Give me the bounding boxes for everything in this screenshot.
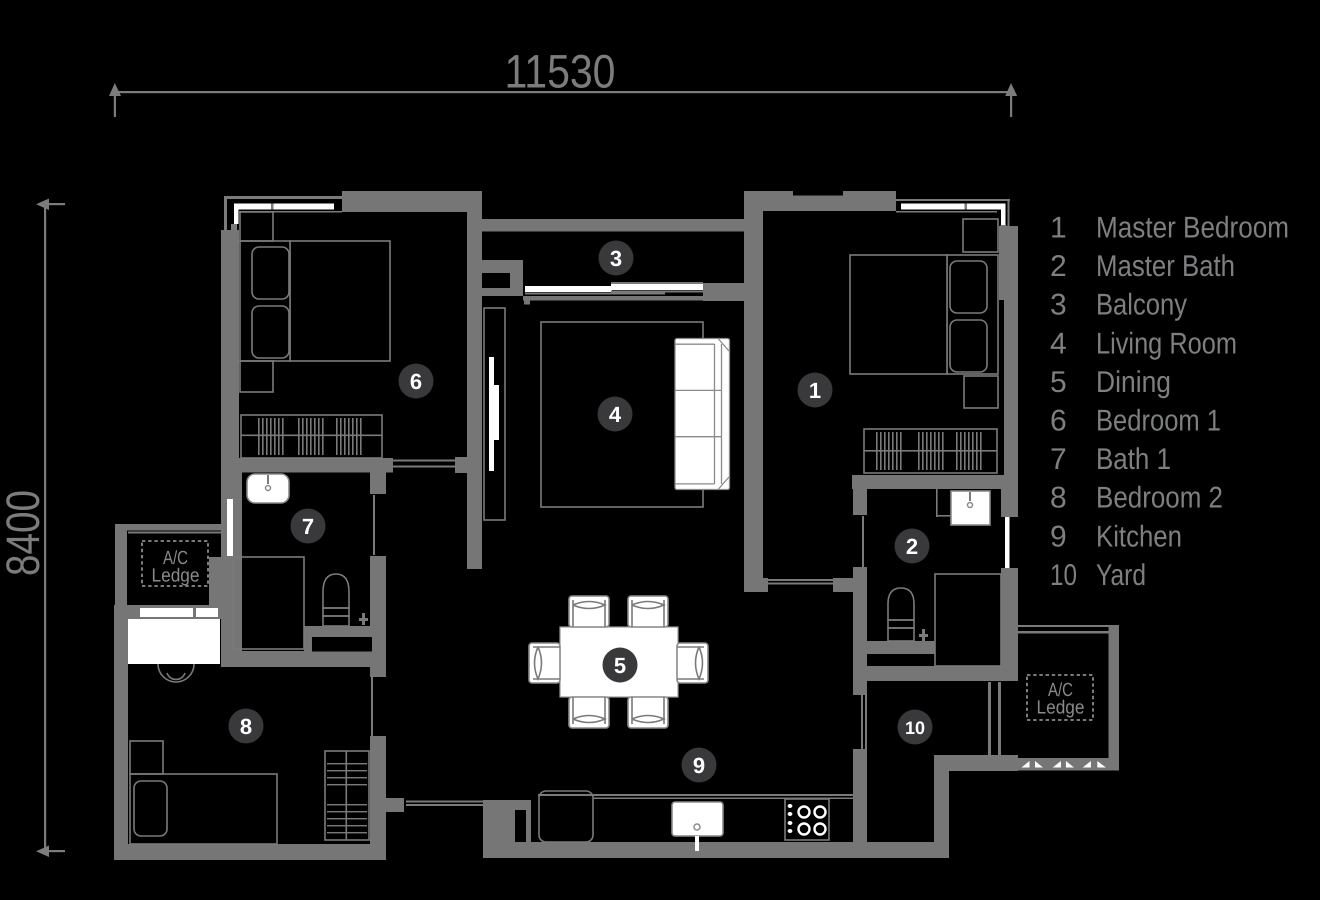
svg-text:Ledge: Ledge xyxy=(152,566,200,587)
svg-text:Master Bath: Master Bath xyxy=(1096,250,1235,283)
svg-text:3: 3 xyxy=(1050,289,1067,322)
svg-text:1: 1 xyxy=(1050,212,1067,245)
svg-text:5: 5 xyxy=(1050,366,1067,399)
svg-text:9: 9 xyxy=(1050,520,1067,553)
svg-text:Dining: Dining xyxy=(1096,366,1171,399)
svg-text:8400: 8400 xyxy=(0,490,49,576)
svg-text:1: 1 xyxy=(809,378,821,403)
svg-text:Yard: Yard xyxy=(1096,559,1146,592)
svg-text:6: 6 xyxy=(1050,405,1067,438)
svg-text:8: 8 xyxy=(240,714,252,739)
svg-text:10: 10 xyxy=(1050,559,1077,592)
svg-text:Bath 1: Bath 1 xyxy=(1096,443,1171,476)
svg-text:4: 4 xyxy=(1050,327,1067,360)
svg-text:6: 6 xyxy=(410,369,422,394)
svg-text:7: 7 xyxy=(302,514,314,539)
svg-text:Ledge: Ledge xyxy=(1037,698,1085,719)
svg-text:10: 10 xyxy=(905,718,925,738)
svg-text:7: 7 xyxy=(1050,443,1067,476)
svg-text:Bedroom 1: Bedroom 1 xyxy=(1096,405,1221,438)
svg-text:2: 2 xyxy=(1050,250,1067,283)
svg-text:5: 5 xyxy=(614,653,626,678)
svg-text:9: 9 xyxy=(693,753,705,778)
svg-text:11530: 11530 xyxy=(505,45,616,98)
svg-text:8: 8 xyxy=(1050,482,1067,515)
svg-text:2: 2 xyxy=(906,534,918,559)
svg-text:Bedroom 2: Bedroom 2 xyxy=(1096,482,1223,515)
svg-text:Living Room: Living Room xyxy=(1096,327,1237,360)
svg-text:Master Bedroom: Master Bedroom xyxy=(1096,212,1289,245)
svg-text:3: 3 xyxy=(610,246,622,271)
svg-text:4: 4 xyxy=(609,402,622,427)
svg-text:Balcony: Balcony xyxy=(1096,289,1187,322)
svg-text:Kitchen: Kitchen xyxy=(1096,520,1182,553)
